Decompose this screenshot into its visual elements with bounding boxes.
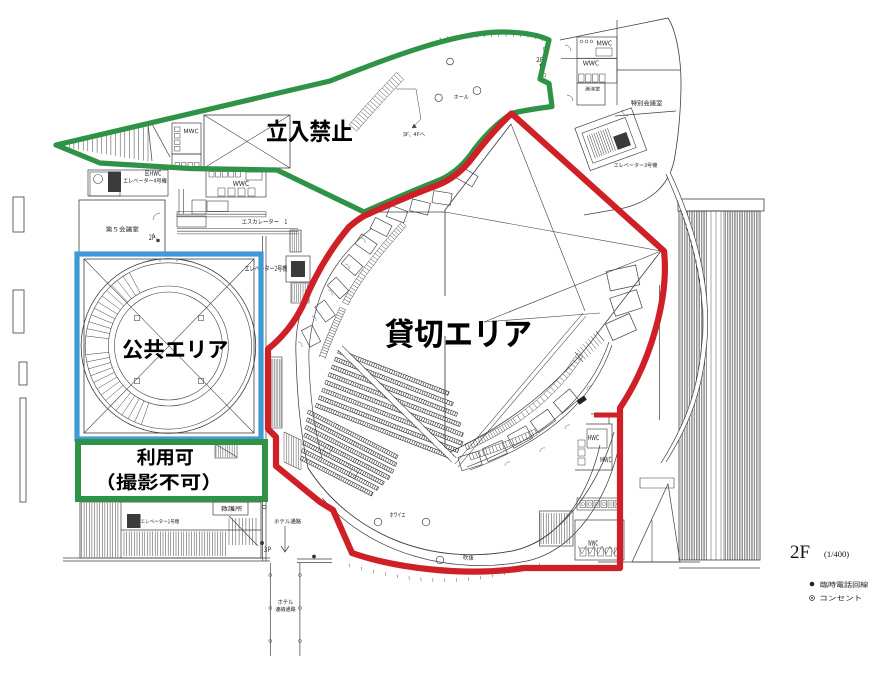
svg-text:(1/400): (1/400)	[824, 549, 849, 559]
svg-text:2F: 2F	[790, 542, 810, 563]
